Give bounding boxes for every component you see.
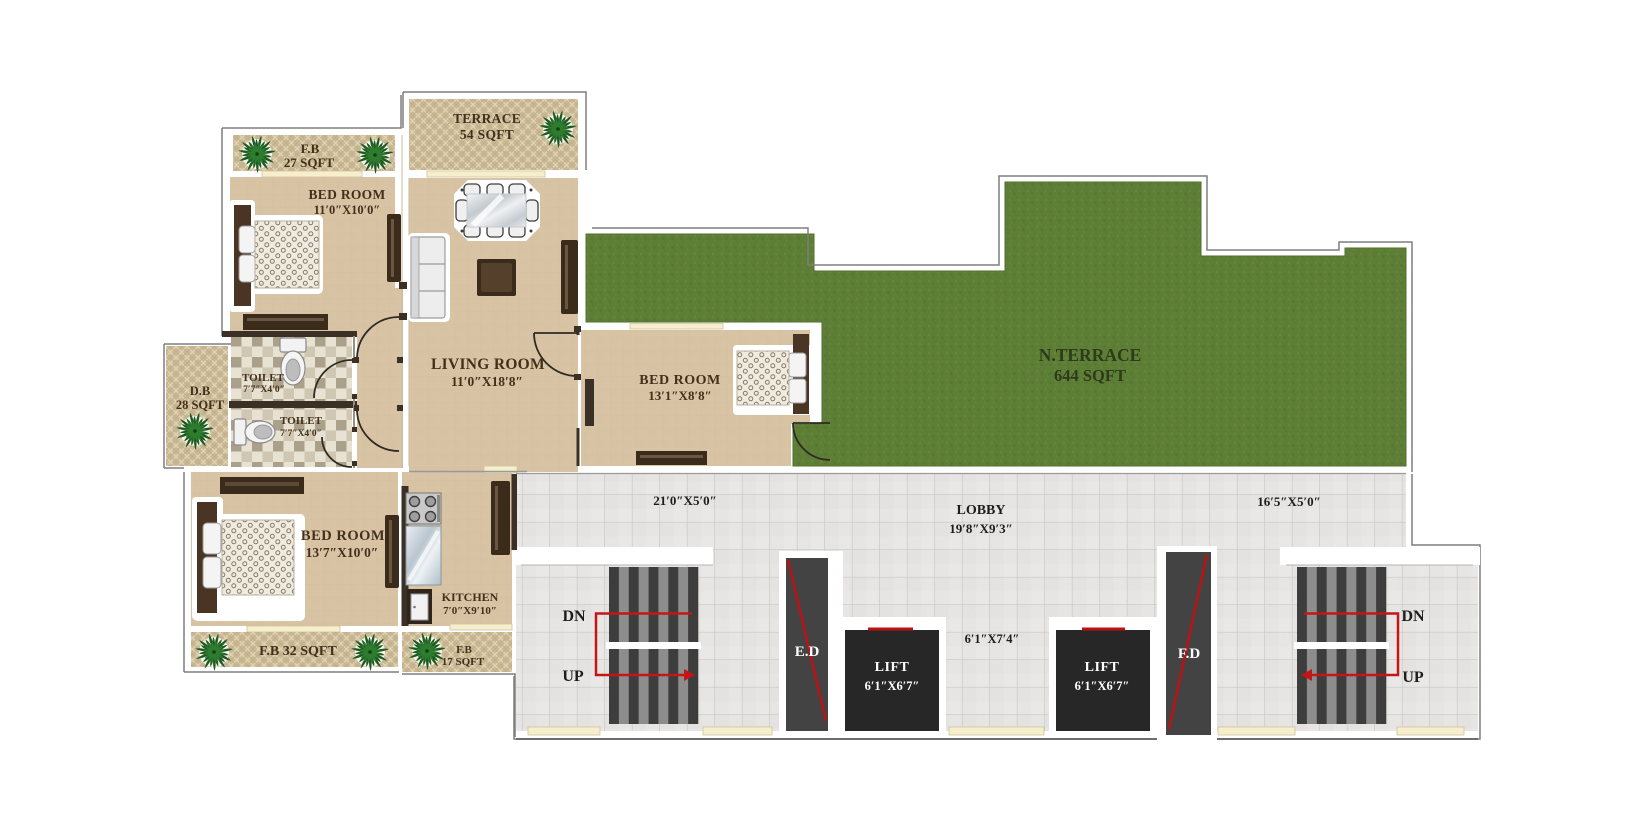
svg-text:UP: UP — [1402, 669, 1424, 686]
svg-text:DN: DN — [1401, 608, 1425, 625]
svg-text:F.B: F.B — [301, 141, 320, 156]
svg-text:16′5″X5′0″: 16′5″X5′0″ — [1257, 494, 1321, 509]
svg-text:E.D: E.D — [795, 644, 820, 660]
svg-text:7′7″X4′0″: 7′7″X4′0″ — [243, 385, 285, 395]
svg-text:F.B: F.B — [456, 644, 472, 656]
svg-text:LOBBY: LOBBY — [956, 503, 1005, 518]
svg-text:17 SQFT: 17 SQFT — [442, 656, 485, 668]
svg-text:21′0″X5′0″: 21′0″X5′0″ — [653, 493, 717, 508]
svg-text:D.B: D.B — [190, 384, 211, 398]
svg-text:BED ROOM: BED ROOM — [301, 528, 385, 544]
svg-text:UP: UP — [562, 668, 584, 685]
svg-text:19′8″X9′3″: 19′8″X9′3″ — [949, 521, 1013, 536]
svg-text:F.B 32 SQFT: F.B 32 SQFT — [259, 644, 337, 659]
svg-text:DN: DN — [562, 608, 586, 625]
svg-text:6′1″X6′7″: 6′1″X6′7″ — [865, 679, 920, 693]
svg-text:N.TERRACE: N.TERRACE — [1039, 345, 1142, 365]
svg-text:LIVING ROOM: LIVING ROOM — [431, 356, 545, 373]
svg-text:6′1″X6′7″: 6′1″X6′7″ — [1075, 679, 1130, 693]
svg-text:TOILET: TOILET — [280, 415, 323, 427]
svg-text:644 SQFT: 644 SQFT — [1054, 366, 1126, 385]
svg-text:28 SQFT: 28 SQFT — [176, 398, 225, 412]
svg-text:LIFT: LIFT — [875, 660, 910, 675]
svg-text:LIFT: LIFT — [1085, 660, 1120, 675]
svg-text:7′0″X9′10″: 7′0″X9′10″ — [443, 605, 497, 617]
svg-text:13′1″X8′8″: 13′1″X8′8″ — [648, 388, 712, 403]
svg-text:BED ROOM: BED ROOM — [308, 187, 385, 202]
svg-text:27 SQFT: 27 SQFT — [284, 155, 335, 170]
svg-text:13′7″X10′0″: 13′7″X10′0″ — [306, 545, 379, 560]
svg-text:F.D: F.D — [1178, 646, 1201, 662]
svg-text:6′1″X7′4″: 6′1″X7′4″ — [965, 632, 1020, 646]
svg-text:TERRACE: TERRACE — [453, 111, 521, 126]
svg-text:11′0″X18′8″: 11′0″X18′8″ — [451, 374, 523, 389]
svg-text:54 SQFT: 54 SQFT — [460, 127, 514, 142]
svg-text:7′7″X4′0″: 7′7″X4′0″ — [280, 429, 322, 439]
svg-text:TOILET: TOILET — [242, 372, 285, 384]
svg-text:KITCHEN: KITCHEN — [442, 590, 499, 604]
svg-text:BED ROOM: BED ROOM — [639, 373, 720, 388]
svg-text:11′0″X10′0″: 11′0″X10′0″ — [314, 203, 381, 217]
